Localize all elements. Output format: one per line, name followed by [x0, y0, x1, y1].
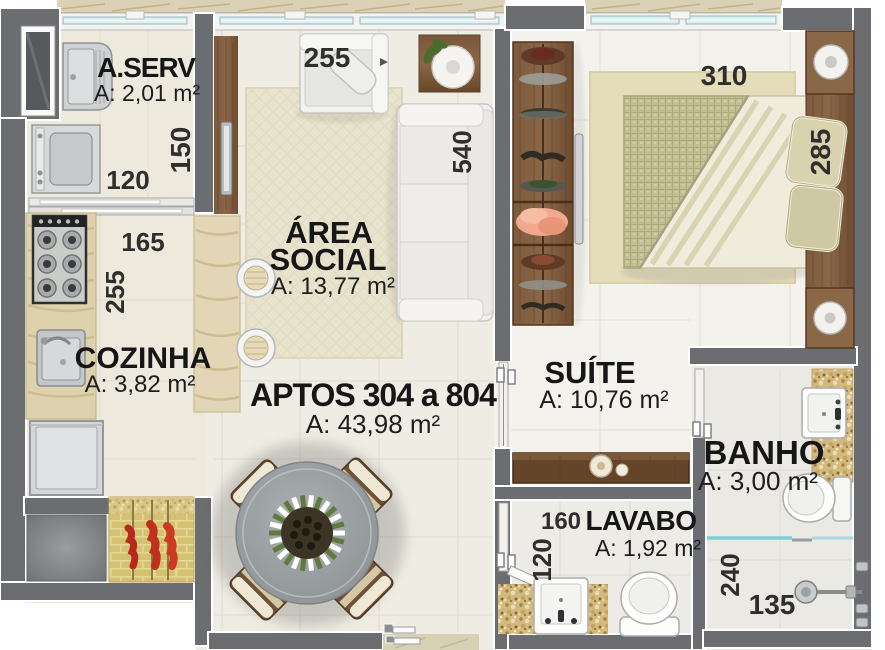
svg-text:255: 255 [304, 42, 351, 73]
svg-text:A: 43,98 m²: A: 43,98 m² [306, 409, 441, 439]
svg-text:A: 3,00 m²: A: 3,00 m² [698, 466, 818, 496]
svg-text:540: 540 [447, 130, 477, 173]
svg-text:APTOS 304 a 804: APTOS 304 a 804 [250, 377, 497, 413]
svg-text:150: 150 [165, 127, 196, 174]
svg-text:120: 120 [106, 165, 149, 195]
svg-text:120: 120 [527, 538, 557, 581]
svg-text:A: 13,77 m²: A: 13,77 m² [271, 273, 395, 300]
svg-text:285: 285 [805, 129, 836, 176]
svg-text:A.SERV: A.SERV [97, 52, 196, 83]
svg-text:165: 165 [121, 227, 164, 257]
svg-text:SUÍTE: SUÍTE [544, 355, 635, 390]
svg-text:240: 240 [715, 553, 745, 596]
svg-text:135: 135 [749, 589, 796, 620]
svg-text:255: 255 [100, 270, 130, 313]
svg-text:A: 3,82 m²: A: 3,82 m² [85, 371, 196, 398]
svg-text:LAVABO: LAVABO [585, 505, 696, 536]
svg-text:310: 310 [701, 60, 748, 91]
svg-text:SOCIAL: SOCIAL [269, 242, 386, 277]
svg-text:A: 10,76 m²: A: 10,76 m² [539, 386, 668, 414]
svg-text:A: 1,92 m²: A: 1,92 m² [595, 535, 701, 561]
svg-text:160: 160 [541, 508, 581, 535]
svg-text:A: 2,01 m²: A: 2,01 m² [94, 80, 200, 106]
